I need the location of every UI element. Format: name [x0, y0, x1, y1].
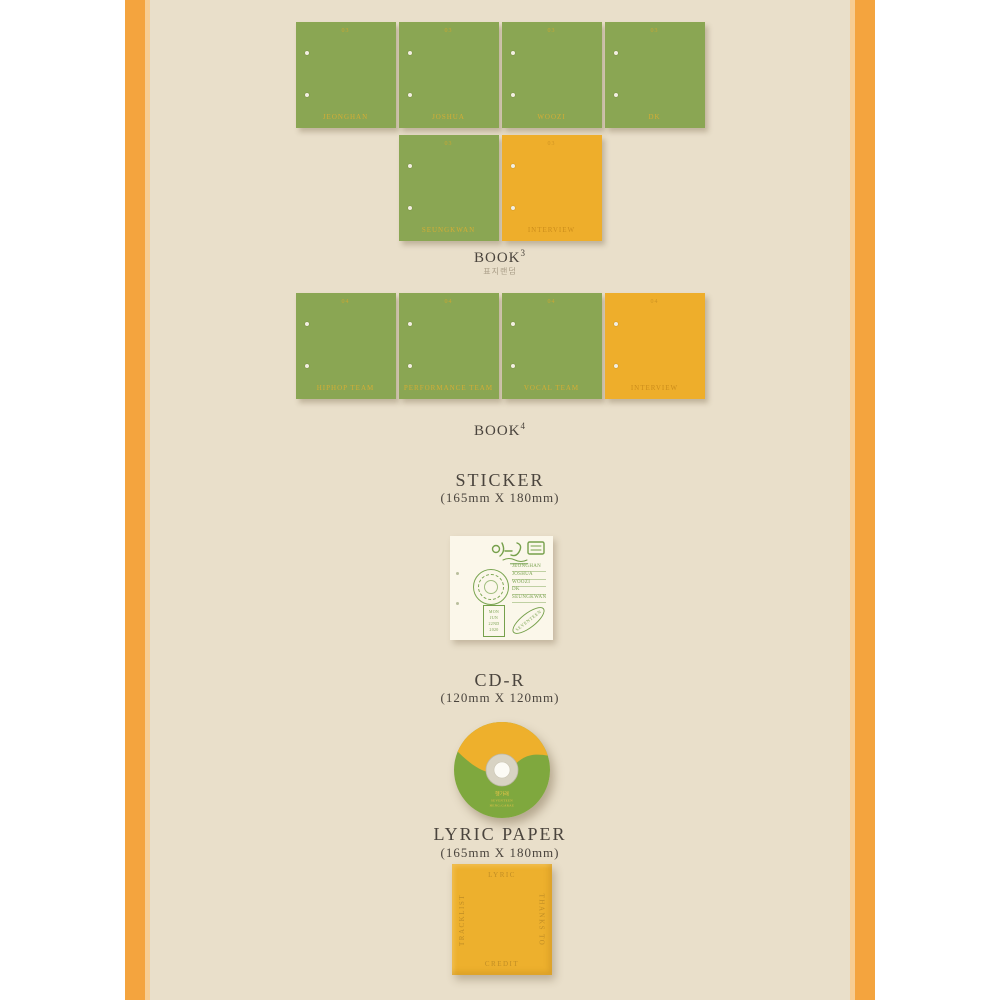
book-cover-jeonghan: 03 JEONGHAN [296, 22, 396, 128]
binding-hole [305, 51, 309, 55]
cover-number: 04 [605, 299, 705, 305]
binding-hole [305, 364, 309, 368]
book3-section-label: BOOK3 [150, 248, 850, 267]
right-orange-frame-bar [855, 0, 875, 1000]
sticker-name: SEUNGKWAN [512, 595, 546, 603]
sticker-sheet: JEONGHAN JOSHUA WOOZI DK SEUNGKWAN MON J… [450, 536, 553, 640]
book-cover-vocal-team: 04 VOCAL TEAM [502, 293, 602, 399]
sticker-date-stamp: MON JUN 22ND 2020 [483, 605, 505, 637]
binding-hole [614, 322, 618, 326]
cover-name: INTERVIEW [502, 226, 602, 234]
cover-name: HIPHOP TEAM [296, 384, 396, 392]
book4-section-label: BOOK4 [150, 421, 850, 440]
book4-covers-row: 04 HIPHOP TEAM 04 PERFORMANCE TEAM 04 VO… [150, 293, 850, 399]
sticker-section-title: STICKER [150, 470, 850, 491]
binding-hole [614, 93, 618, 97]
sticker-name: WOOZI [512, 580, 546, 588]
book3-label-text: BOOK [474, 250, 521, 266]
binding-hole [511, 51, 515, 55]
cover-name: VOCAL TEAM [502, 384, 602, 392]
cover-name: WOOZI [502, 113, 602, 121]
cover-number: 04 [399, 299, 499, 305]
left-orange-frame-bar [125, 0, 145, 1000]
binding-hole [408, 51, 412, 55]
cover-number: 03 [502, 28, 602, 34]
binding-hole [408, 164, 412, 168]
binding-hole [408, 322, 412, 326]
sticker-size-label: (165mm X 180mm) [150, 490, 850, 506]
cover-number: 04 [502, 299, 602, 305]
right-frame-inner-stripe [850, 0, 855, 1000]
cover-number: 03 [399, 141, 499, 147]
binding-hole [511, 93, 515, 97]
book-cover-hiphop-team: 04 HIPHOP TEAM [296, 293, 396, 399]
cd-label-line: 헹가래 [495, 791, 509, 798]
sticker-name: DK [512, 587, 546, 595]
binding-hole [456, 602, 459, 605]
binding-hole [511, 364, 515, 368]
binding-hole [305, 322, 309, 326]
lyric-paper-word-left: TRACKLIST [458, 894, 466, 946]
cover-name: JEONGHAN [296, 113, 396, 121]
cd-size-label: (120mm X 120mm) [150, 690, 850, 706]
cover-name: DK [605, 113, 705, 121]
cover-number: 03 [502, 141, 602, 147]
lyric-paper-size-label: (165mm X 180mm) [150, 845, 850, 861]
hanggarae-logo-icon [490, 540, 548, 566]
book-cover-seungkwan: 03 SEUNGKWAN [399, 135, 499, 241]
book3-subtitle-korean: 표지랜덤 [150, 266, 850, 277]
stamp-inner-circle [484, 580, 498, 594]
book3-covers-row1: 03 JEONGHAN 03 JOSHUA 03 WOOZI 03 DK [150, 22, 850, 128]
cover-name: PERFORMANCE TEAM [399, 384, 499, 392]
cd-label-line: SEVENTEEN [491, 799, 513, 803]
binding-hole [511, 322, 515, 326]
cd-disc-art: 헹가래 SEVENTEEN HENG:GARAE [454, 722, 550, 818]
binding-hole [408, 206, 412, 210]
sticker-name: JEONGHAN [512, 564, 546, 572]
cover-number: 03 [605, 28, 705, 34]
lyric-paper: LYRIC TRACKLIST THANKS TO CREDIT [452, 864, 552, 975]
binding-hole [511, 164, 515, 168]
cover-number: 03 [399, 28, 499, 34]
date-line: 2020 [484, 627, 504, 633]
album-contents-graphic: 03 JEONGHAN 03 JOSHUA 03 WOOZI 03 DK 03 [0, 0, 1000, 1000]
sticker-name: JOSHUA [512, 572, 546, 580]
binding-hole [614, 364, 618, 368]
cover-number: 04 [296, 299, 396, 305]
cd-label-line: HENG:GARAE [490, 804, 515, 808]
sticker-member-name-list: JEONGHAN JOSHUA WOOZI DK SEUNGKWAN [512, 564, 546, 603]
binding-hole [511, 206, 515, 210]
cd-section-title: CD-R [150, 670, 850, 691]
book3-label-sup: 3 [521, 248, 527, 258]
cd-disc: 헹가래 SEVENTEEN HENG:GARAE [454, 722, 550, 818]
book4-label-text: BOOK [474, 423, 521, 439]
lyric-paper-word-top: LYRIC [488, 871, 516, 879]
binding-hole [456, 572, 459, 575]
cover-name: JOSHUA [399, 113, 499, 121]
binding-hole [614, 51, 618, 55]
cover-name: INTERVIEW [605, 384, 705, 392]
lyric-paper-section-title: LYRIC PAPER [150, 824, 850, 845]
sticker-oval-badge: SEVENTEEN [509, 603, 549, 639]
book-cover-woozi: 03 WOOZI [502, 22, 602, 128]
circular-stamp-icon [473, 569, 509, 605]
book-cover-performance-team: 04 PERFORMANCE TEAM [399, 293, 499, 399]
book-cover-dk: 03 DK [605, 22, 705, 128]
lyric-paper-word-bottom: CREDIT [485, 960, 519, 968]
binding-hole [408, 93, 412, 97]
binding-hole [305, 93, 309, 97]
book4-label-sup: 4 [521, 421, 527, 431]
cover-name: SEUNGKWAN [399, 226, 499, 234]
book3-covers-row2: 03 SEUNGKWAN 03 INTERVIEW [150, 135, 850, 241]
oval-badge-text: SEVENTEEN [515, 609, 543, 632]
book-cover-joshua: 03 JOSHUA [399, 22, 499, 128]
book-cover-interview-book4: 04 INTERVIEW [605, 293, 705, 399]
lyric-paper-word-right: THANKS TO [538, 893, 546, 946]
book-cover-interview-book3: 03 INTERVIEW [502, 135, 602, 241]
binding-hole [408, 364, 412, 368]
cover-number: 03 [296, 28, 396, 34]
